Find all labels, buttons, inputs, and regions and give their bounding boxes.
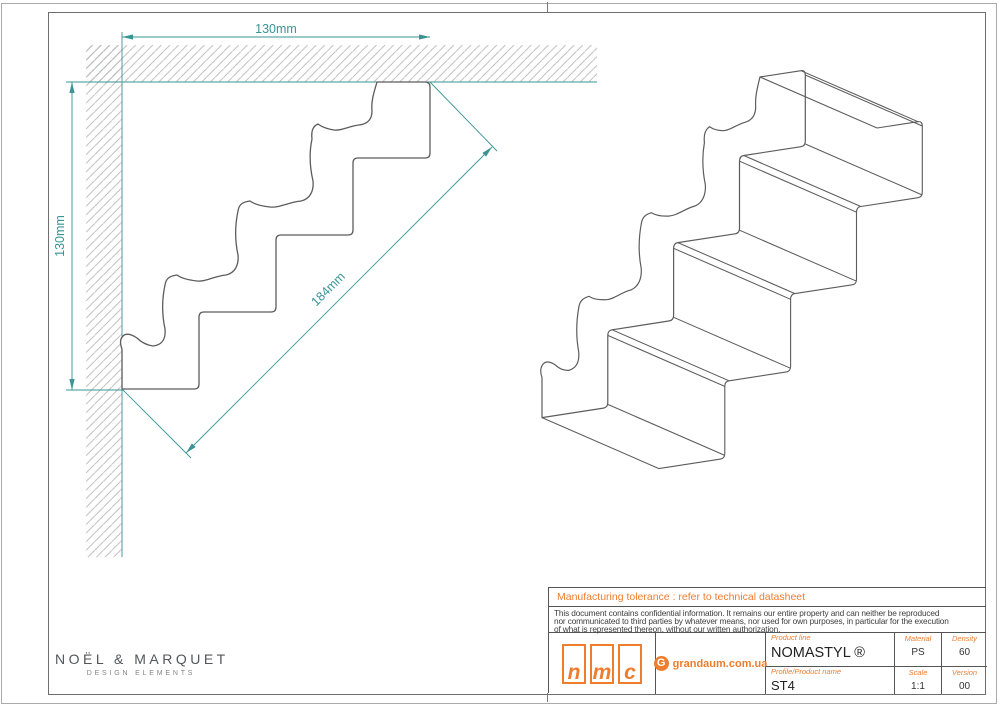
- perspective-extrusion-edge: [760, 77, 877, 128]
- perspective-extrusion-edge: [805, 144, 922, 195]
- dim-arrow-up: [69, 82, 74, 93]
- spec-grid: Material PS Density 60 Scale 1:1 Version…: [895, 633, 987, 694]
- title-block: Manufacturing tolerance : refer to techn…: [548, 587, 986, 693]
- product-line-value: NOMASTYL ®: [771, 645, 894, 661]
- nmc-letter: m: [593, 663, 612, 683]
- version-cell: Version 00: [942, 667, 987, 694]
- material-label: Material: [895, 635, 941, 643]
- partner-url: grandaum.com.ua: [673, 658, 768, 670]
- version-label: Version: [942, 669, 987, 677]
- density-value: 60: [942, 647, 987, 658]
- density-label: Density: [942, 635, 987, 643]
- perspective-front-outline: [541, 71, 805, 418]
- noel-marquet-name: NOËL & MARQUET: [55, 651, 227, 667]
- dim-arrow-right: [419, 34, 430, 39]
- perspective-extrusion-edge: [740, 161, 857, 212]
- dim-top-label: 130mm: [255, 22, 297, 36]
- product-name-value: ST4: [771, 678, 894, 693]
- perspective-extrusion-edge: [801, 71, 918, 122]
- scale-cell: Scale 1:1: [895, 667, 942, 694]
- dim-diagonal-extension: [122, 389, 191, 458]
- wall-hatch: [86, 45, 122, 557]
- ceiling-hatch: [86, 45, 597, 82]
- confidentiality-notice: This document contains confidential info…: [549, 607, 986, 633]
- grandaum-icon: G: [654, 656, 669, 671]
- nmc-letter: c: [624, 663, 636, 683]
- dim-left-label: 130mm: [53, 215, 67, 257]
- dim-arrow-left: [122, 34, 133, 39]
- product-cell: Product line NOMASTYL ® Profile/Product …: [766, 633, 895, 694]
- profile-section-outline: [121, 82, 430, 389]
- dim-diagonal-label: 184mm: [308, 269, 347, 308]
- perspective-extrusion-edge: [744, 156, 861, 207]
- version-value: 00: [942, 681, 987, 692]
- noel-marquet-tagline: DESIGN ELEMENTS: [55, 670, 227, 677]
- perspective-extrusion-edge: [674, 248, 791, 299]
- perspective-extrusion-edge: [608, 335, 725, 386]
- nmc-logo-box: n: [562, 644, 586, 684]
- nmc-logo-box: c: [618, 644, 642, 684]
- nmc-logo: n m c: [549, 633, 656, 694]
- product-name-label: Profile/Product name: [771, 668, 894, 676]
- perspective-extrusion-edge: [678, 243, 795, 294]
- dim-diagonal-extension: [430, 82, 497, 151]
- dim-arrow-down: [69, 379, 74, 390]
- perspective-back-outline: [659, 122, 922, 469]
- noel-marquet-logo: NOËL & MARQUET DESIGN ELEMENTS: [55, 651, 227, 677]
- material-value: PS: [895, 647, 941, 658]
- scale-label: Scale: [895, 669, 941, 677]
- perspective-extrusion-edge: [612, 330, 729, 381]
- perspective-extrusion-edge: [542, 418, 659, 469]
- tolerance-note: Manufacturing tolerance : refer to techn…: [549, 588, 986, 607]
- perspective-extrusion-edge: [740, 230, 857, 281]
- density-cell: Density 60: [942, 633, 987, 667]
- product-line-label: Product line: [771, 634, 894, 642]
- scale-value: 1:1: [895, 681, 941, 692]
- drawing-sheet: 130mm 130mm 184mm NOËL & MARQUET DESIGN …: [0, 0, 1000, 707]
- partner-logo: G grandaum.com.ua: [656, 633, 766, 694]
- nmc-letter: n: [568, 663, 581, 683]
- material-cell: Material PS: [895, 633, 942, 667]
- perspective-extrusion-edge: [674, 317, 791, 368]
- perspective-extrusion-edge: [608, 404, 725, 455]
- nmc-logo-box: m: [590, 644, 614, 684]
- perspective-extrusion-edge: [805, 75, 922, 126]
